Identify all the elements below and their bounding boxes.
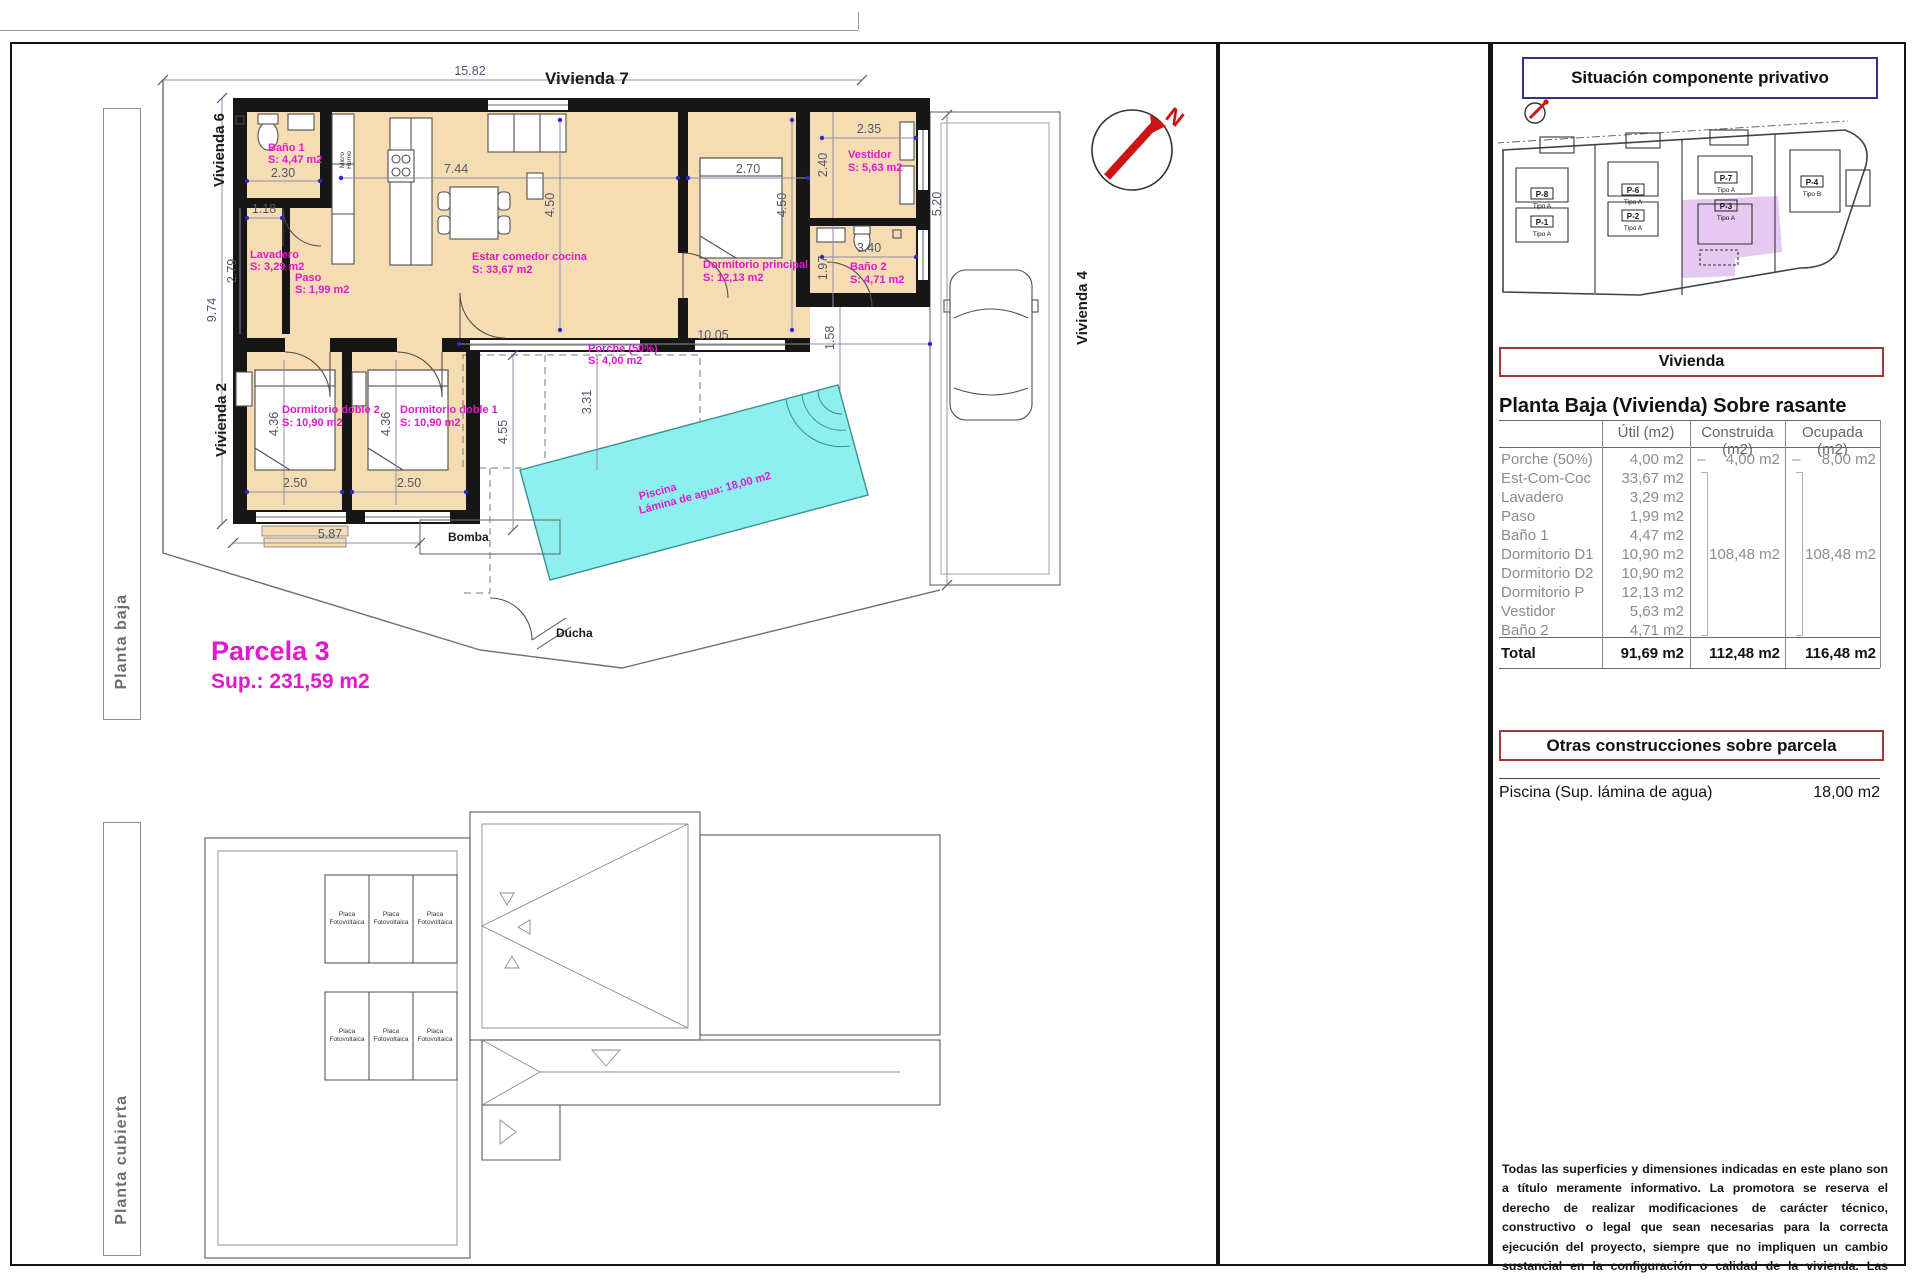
placa-label: Placa	[339, 911, 356, 918]
solar-panels-group-1: Placa Fotovoltaica Placa Fotovoltaica Pl…	[325, 875, 457, 963]
room-estar-name: Estar comedor cocina	[472, 251, 588, 263]
table-row: Dormitorio P	[1501, 583, 1601, 602]
otras-title: Otras construcciones sobre parcela	[1546, 736, 1836, 756]
svg-text:Placa: Placa	[339, 1028, 356, 1035]
otras-title-box: Otras construcciones sobre parcela	[1499, 730, 1884, 761]
table-row: Paso	[1501, 507, 1601, 526]
room-estar-area: S: 33,67 m2	[472, 264, 533, 276]
dim-vestidor-h: 2.40	[816, 153, 830, 177]
col-header-util: Útil (m2)	[1602, 424, 1690, 441]
room-dormp-area: S: 12,13 m2	[703, 272, 764, 284]
planta-baja-heading: Planta Baja (Vivienda) Sobre rasante	[1499, 395, 1847, 418]
vivienda7-label: Vivienda 7	[545, 69, 629, 88]
roof-plan: Placa Fotovoltaica Placa Fotovoltaica Pl…	[205, 812, 940, 1258]
parcela-sup: Sup.: 231,59 m2	[211, 670, 370, 693]
parcel-p4: P-4	[1806, 178, 1819, 187]
table-row: Dormitorio D2	[1501, 564, 1601, 583]
svg-text:Placa: Placa	[427, 911, 444, 918]
dim-estar-w: 7.44	[444, 162, 468, 176]
room-porche-name: Porche (50%)	[588, 343, 658, 355]
svg-text:Tipo A: Tipo A	[1624, 225, 1643, 232]
parcel-p7: P-7	[1720, 174, 1733, 183]
dim-lavadero-h: 2.79	[225, 259, 239, 283]
drawing-sheet: Planta baja Planta cubierta	[0, 0, 1920, 1280]
construida-group-value: 108,48 m2	[1690, 545, 1780, 564]
svg-text:Placa: Placa	[427, 1028, 444, 1035]
dim-dd2-h: 4.36	[267, 412, 281, 436]
svg-text:Fotovoltaica: Fotovoltaica	[417, 1036, 452, 1043]
dim-bano2-w: 3.40	[857, 241, 881, 255]
dim-patio-h: 5.20	[930, 192, 944, 216]
parcel-p8: P-8	[1536, 190, 1549, 199]
vivienda6-label: Vivienda 6	[211, 113, 228, 187]
svg-text:Fotovoltaica: Fotovoltaica	[417, 919, 452, 926]
vivienda-title: Vivienda	[1659, 353, 1725, 371]
parcel-p6: P-6	[1627, 186, 1640, 195]
vivienda2-label: Vivienda 2	[213, 383, 230, 457]
svg-text:Tipo B: Tipo B	[1803, 191, 1822, 198]
frame-divider-left	[1216, 42, 1220, 1266]
table-row: Est-Com-Coc	[1501, 469, 1601, 488]
parcela-name: Parcela 3	[211, 636, 330, 666]
svg-text:Fotovoltaica: Fotovoltaica	[329, 1036, 364, 1043]
north-compass: N	[1092, 102, 1189, 190]
room-paso-name: Paso	[295, 272, 322, 284]
total-label: Total	[1501, 640, 1536, 668]
table-row: Lavadero	[1501, 488, 1601, 507]
floor-plan-drawing: Piscina Lámina de agua: 18,00 m2	[10, 42, 1214, 1266]
table-row: Baño 2	[1501, 621, 1601, 640]
dim-dd1-h: 4.36	[379, 412, 393, 436]
areas-table: Útil (m2) Construida (m2) Ocupada (m2) P…	[1499, 420, 1880, 668]
room-dd1-name: Dormitorio doble 1	[400, 404, 498, 416]
bomba-label: Bomba	[448, 530, 489, 544]
dim-left-height: 9.74	[205, 298, 219, 322]
adjacent-sheet-tick	[858, 12, 859, 30]
shower-door-icon	[490, 598, 532, 640]
dim-bano2-h: 1.97	[816, 256, 830, 280]
dining-table-icon	[450, 187, 498, 239]
room-bano1-name: Baño 1	[268, 142, 305, 154]
dim-base-w: 5.87	[318, 527, 342, 541]
dim-dd2-w: 2.50	[283, 476, 307, 490]
room-vestidor-name: Vestidor	[848, 149, 892, 161]
dim-porch-h: 3.31	[580, 390, 594, 414]
total-construida: 112,48 m2	[1690, 640, 1780, 668]
dim-lavadero-w: 1.18	[252, 202, 276, 216]
dim-dormp-h: 4.50	[775, 193, 789, 217]
vivienda-title-box: Vivienda	[1499, 347, 1884, 377]
micro-label: Micro	[339, 152, 346, 168]
room-lavadero-name: Lavadero	[250, 249, 299, 261]
adjacent-sheet-edge	[0, 30, 858, 31]
room-dd2-area: S: 10,90 m2	[282, 417, 343, 429]
dim-vestidor-w: 2.35	[857, 122, 881, 136]
legal-disclaimer: Todas las superficies y dimensiones indi…	[1502, 1160, 1888, 1280]
porche-ocupada: 8,00 m2	[1785, 450, 1876, 469]
dim-bano1: 2.30	[271, 166, 295, 180]
svg-text:Tipo A: Tipo A	[1624, 199, 1643, 206]
ocupada-group-value: 108,48 m2	[1785, 545, 1876, 564]
room-dd2-name: Dormitorio doble 2	[282, 404, 380, 416]
porche-construida: 4,00 m2	[1690, 450, 1780, 469]
table-row: Baño 1	[1501, 526, 1601, 545]
svg-text:Tipo A: Tipo A	[1717, 187, 1736, 194]
dim-porch-s: 4.55	[496, 420, 510, 444]
situacion-title: Situación componente privativo	[1571, 68, 1829, 88]
frame-divider-right	[1488, 42, 1493, 1266]
table-row: Porche (50%)	[1501, 450, 1601, 469]
table-row: Dormitorio D1	[1501, 545, 1601, 564]
horno-label: Horno	[346, 151, 353, 169]
sofa-icon	[488, 114, 566, 152]
ducha-label: Ducha	[556, 626, 593, 640]
situacion-title-box: Situación componente privativo	[1522, 57, 1878, 99]
dim-dormp-w: 2.70	[736, 162, 760, 176]
site-plan: P-8 Tipo A P-1 Tipo A P-6 Tipo A P-2 Tip…	[1498, 115, 1892, 310]
total-ocupada: 116,48 m2	[1785, 640, 1876, 668]
dim-estar-h: 4.50	[543, 193, 557, 217]
vivienda4-label: Vivienda 4	[1074, 270, 1091, 345]
dim-porch-w: 10.05	[697, 328, 728, 342]
svg-text:Placa: Placa	[383, 911, 400, 918]
parcel-p2: P-2	[1627, 212, 1640, 221]
room-dormp-name: Dormitorio principal	[703, 259, 808, 271]
solar-panels-group-2: Placa Fotovoltaica Placa Fotovoltaica Pl…	[325, 992, 457, 1080]
cooktop-icon	[388, 150, 414, 182]
svg-text:Fotovoltaica: Fotovoltaica	[373, 1036, 408, 1043]
room-bano1-area: S: 4,47 m2	[268, 154, 322, 166]
room-dd1-area: S: 10,90 m2	[400, 417, 461, 429]
room-vestidor-area: S: 5,63 m2	[848, 162, 902, 174]
total-util: 91,69 m2	[1602, 640, 1684, 668]
svg-text:Placa: Placa	[383, 1028, 400, 1035]
svg-text:Tipo A: Tipo A	[1533, 203, 1552, 210]
dim-porch-e: 1.58	[823, 326, 837, 350]
car-icon	[950, 270, 1032, 420]
room-porche-area: S: 4,00 m2	[588, 355, 642, 367]
svg-text:Tipo A: Tipo A	[1533, 231, 1552, 238]
svg-text:Fotovoltaica: Fotovoltaica	[329, 919, 364, 926]
table-row: Vestidor	[1501, 602, 1601, 621]
sink-icon	[288, 114, 314, 130]
svg-text:Fotovoltaica: Fotovoltaica	[373, 919, 408, 926]
dim-dd1-w: 2.50	[397, 476, 421, 490]
room-paso-area: S: 1,99 m2	[295, 284, 349, 296]
piscina-divider	[1499, 778, 1880, 779]
piscina-value: 18,00 m2	[1760, 784, 1880, 802]
parcel-p3: P-3	[1720, 202, 1733, 211]
piscina-label: Piscina (Sup. lámina de agua)	[1499, 784, 1712, 802]
parcel-p1: P-1	[1536, 218, 1549, 227]
svg-text:Tipo A: Tipo A	[1717, 215, 1736, 222]
pool: Piscina Lámina de agua: 18,00 m2	[520, 385, 868, 580]
dim-total-width: 15.82	[454, 64, 485, 78]
room-bano2-area: S: 4,71 m2	[850, 274, 904, 286]
room-bano2-name: Baño 2	[850, 261, 887, 273]
